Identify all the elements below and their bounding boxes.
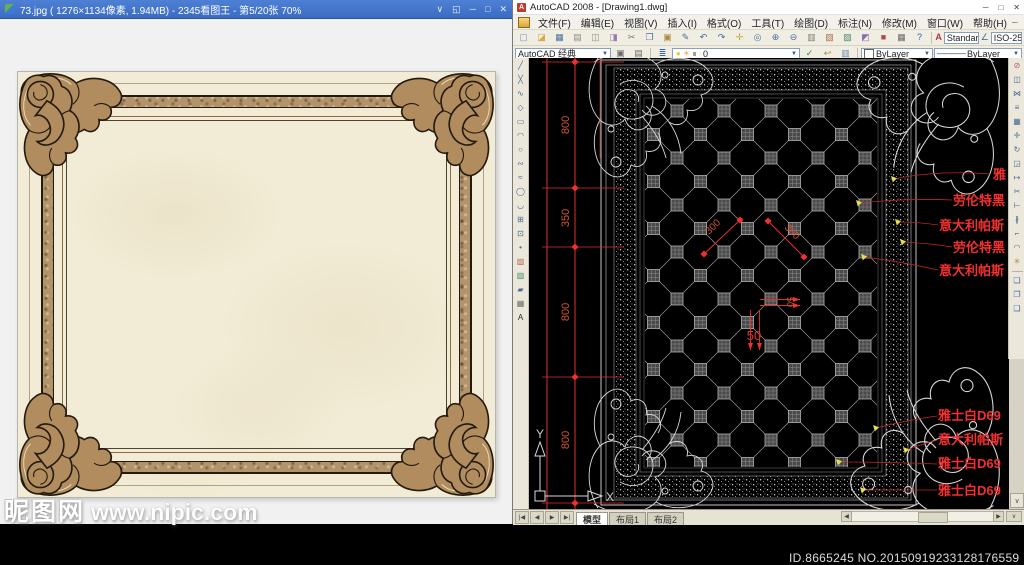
viewer-canvas[interactable] — [0, 19, 512, 524]
chamfer-icon[interactable]: ⌐ — [1010, 227, 1024, 241]
color-chip-icon — [864, 49, 874, 59]
menu-item[interactable]: 视图(V) — [619, 15, 662, 30]
lineweight-glyph: ———— — [937, 49, 965, 58]
dim-style-combo[interactable]: ISO-25 ▼ — [991, 32, 1022, 44]
layer-state-icons: ●☀∎▪ — [675, 50, 703, 58]
rectangle-icon[interactable]: ▭ — [513, 115, 528, 129]
circle-icon[interactable]: ○ — [513, 143, 528, 157]
scroll-right-button[interactable]: ▶ — [993, 511, 1004, 522]
nipic-url: www.nipic.com — [91, 499, 258, 526]
text-style-value: Standard — [947, 33, 979, 43]
acad-window-controls: ─□✕ — [983, 3, 1020, 12]
undo-icon[interactable]: ↶ — [695, 30, 712, 45]
move-icon[interactable]: ✛ — [1010, 129, 1024, 143]
publish-icon[interactable]: ◨ — [605, 30, 622, 45]
horizontal-scroll-thumb[interactable] — [918, 512, 948, 523]
polygon-icon[interactable]: ◇ — [513, 101, 528, 115]
cut-icon[interactable]: ✂ — [623, 30, 640, 45]
zoom-realtime-icon[interactable]: ◎ — [749, 30, 766, 45]
acad-close-icon[interactable]: ✕ — [1013, 3, 1020, 12]
insert-block-icon[interactable]: ⊞ — [513, 213, 528, 227]
scale-icon[interactable]: ◲ — [1010, 157, 1024, 171]
text-style-combo[interactable]: Standard ▼ — [944, 32, 979, 44]
revision-cloud-icon[interactable]: ∾ — [513, 157, 528, 171]
menu-item[interactable]: 工具(T) — [746, 15, 789, 30]
menu-item[interactable]: 帮助(H) — [968, 15, 1012, 30]
viewer-fullscreen-icon[interactable]: ◱ — [452, 4, 461, 15]
dim-50-vertical: 50 — [747, 328, 761, 343]
label-top-5: 意大利帕斯 — [939, 263, 1004, 278]
viewer-titlebar[interactable]: 73.jpg ( 1276×1134像素, 1.94MB) - 2345看图王 … — [0, 0, 512, 19]
standard-toolbar-icons: ▢◪▦▤◫◨✂❐▣✎↶↷✛◎⊕⊖▥▨▧◩■▦? — [515, 30, 928, 45]
copy-object-icon[interactable]: ◫ — [1010, 73, 1024, 87]
polyline-icon[interactable]: ∿ — [513, 87, 528, 101]
designcenter-icon[interactable]: ▨ — [821, 30, 838, 45]
markup-icon[interactable]: ■ — [875, 30, 892, 45]
ucs-y-label: Y — [536, 427, 544, 441]
stretch-icon[interactable]: ↦ — [1010, 171, 1024, 185]
menu-item[interactable]: 绘图(D) — [789, 15, 833, 30]
ellipse-icon[interactable]: ◯ — [513, 185, 528, 199]
viewer-close-icon[interactable]: ✕ — [499, 4, 507, 15]
acad-titlebar[interactable]: A AutoCAD 2008 - [Drawing1.dwg] ─□✕ — [513, 0, 1024, 15]
label-bottom-3: 雅士白D69 — [938, 456, 1001, 471]
tab-next-icon[interactable]: ▶ — [545, 511, 559, 524]
label-bottom-1: 雅士白D69 — [938, 408, 1001, 423]
help-icon[interactable]: ? — [911, 30, 928, 45]
mdi-minimize-icon[interactable]: ─ — [1012, 18, 1018, 27]
quickcalc-icon[interactable]: ▦ — [893, 30, 910, 45]
tab-layout2[interactable]: 布局2 — [647, 512, 684, 525]
chevron-down-icon: ▼ — [1011, 51, 1019, 57]
chevron-down-icon: ∨ — [1014, 497, 1019, 505]
dim-800-bottom: 800 — [560, 431, 572, 449]
photo-marble-border-design[interactable] — [17, 71, 496, 498]
menu-item[interactable]: 窗口(W) — [922, 15, 968, 30]
point-icon[interactable]: • — [513, 241, 528, 255]
tab-prev-icon[interactable]: ◀ — [530, 511, 544, 524]
trim-icon[interactable]: ✂ — [1010, 185, 1024, 199]
chevron-down-icon: ▼ — [789, 51, 797, 57]
menu-item[interactable]: 标注(N) — [833, 15, 877, 30]
dim-800-mid: 800 — [560, 303, 572, 321]
drawing-file-icon — [518, 17, 530, 28]
make-block-icon[interactable]: ⊡ — [513, 227, 528, 241]
menu-items: 文件(F)编辑(E)视图(V)插入(I)格式(O)工具(T)绘图(D)标注(N)… — [533, 15, 1012, 30]
plot-preview-icon[interactable]: ◫ — [587, 30, 604, 45]
viewer-window-controls: ∨◱─□✕ — [437, 4, 507, 15]
arc-icon[interactable]: ◠ — [513, 129, 528, 143]
viewer-title: 73.jpg ( 1276×1134像素, 1.94MB) - 2345看图王 … — [20, 2, 432, 17]
ucs-x-label: X — [606, 490, 614, 504]
layer-freeze-sun-icon[interactable]: ☀ — [683, 50, 690, 58]
draw-toolbar: ╱╳∿◇▭◠○∾≈◯◡⊞⊡•▨▧▰▦A — [513, 58, 529, 509]
paste-icon[interactable]: ▣ — [659, 30, 676, 45]
new-file-icon[interactable]: ▢ — [515, 30, 532, 45]
match-properties-icon[interactable]: ✎ — [677, 30, 694, 45]
line-icon[interactable]: ╱ — [513, 59, 528, 73]
order-icon[interactable]: ❑ — [1010, 302, 1024, 316]
menu-item[interactable]: 修改(M) — [877, 15, 922, 30]
copy-icon[interactable]: ❐ — [641, 30, 658, 45]
menu-item[interactable]: 插入(I) — [662, 15, 701, 30]
tab-nav-buttons: |◀◀▶▶| — [513, 510, 576, 525]
autocad-window: A AutoCAD 2008 - [Drawing1.dwg] ─□✕ 文件(F… — [512, 0, 1024, 524]
photo-corner-ornament-bottom-right — [375, 377, 497, 499]
scroll-down-button[interactable]: ∨ — [1010, 493, 1024, 508]
viewer-maximize-icon[interactable]: □ — [485, 4, 490, 15]
layer-lock-icon[interactable]: ∎ — [692, 50, 697, 58]
label-top-4: 劳伦特黑 — [953, 240, 1005, 255]
zoom-window-icon[interactable]: ⊕ — [767, 30, 784, 45]
tab-first-icon[interactable]: |◀ — [515, 511, 529, 524]
spline-icon[interactable]: ≈ — [513, 171, 528, 185]
photo-corner-ornament-top-right — [375, 70, 497, 192]
layer-color-chip-icon[interactable]: ▪ — [699, 50, 702, 58]
pan-icon[interactable]: ✛ — [731, 30, 748, 45]
color-value: ByLayer — [876, 49, 909, 59]
tab-layout1[interactable]: 布局1 — [609, 512, 646, 525]
nipic-logo: 昵图网 — [4, 492, 85, 528]
horizontal-scroll-track[interactable] — [852, 511, 993, 522]
acad-minimize-icon[interactable]: ─ — [983, 3, 989, 12]
chevron-down-icon: ▼ — [922, 51, 930, 57]
label-top-1: 雅 — [993, 167, 1006, 182]
tool-palettes-icon[interactable]: ▧ — [839, 30, 856, 45]
menu-item[interactable]: 文件(F) — [533, 15, 576, 30]
multiline-text-icon[interactable]: A — [513, 311, 528, 325]
screen: { "viewer": { "title": "73.jpg ( 1276×11… — [0, 0, 1024, 524]
region-icon[interactable]: ▰ — [513, 283, 528, 297]
layer-name-value: 0 — [703, 49, 708, 59]
chevron-down-icon: ∨ — [1012, 513, 1016, 520]
extend-icon[interactable]: ⊢ — [1010, 199, 1024, 213]
construction-line-icon[interactable]: ╳ — [513, 73, 528, 87]
save-icon[interactable]: ▦ — [551, 30, 568, 45]
group-icon[interactable]: ❏ — [1010, 274, 1024, 288]
layer-on-bulb-icon[interactable]: ● — [676, 50, 681, 58]
acad-main-area: ╱╳∿◇▭◠○∾≈◯◡⊞⊡•▨▧▰▦A — [513, 58, 1024, 509]
acad-maximize-icon[interactable]: □ — [998, 3, 1003, 12]
modify-toolbar: ⊘◫⋈≡▦✛↻◲↦✂⊢∦⌐◠✳ ❏❐❑ — [1008, 58, 1024, 359]
acad-title: AutoCAD 2008 - [Drawing1.dwg] — [530, 2, 979, 13]
dim-style-icon[interactable]: ∠ — [980, 30, 990, 45]
scroll-left-button[interactable]: ◀ — [841, 511, 852, 522]
erase-icon[interactable]: ⊘ — [1010, 59, 1024, 73]
label-bottom-4: 雅士白D69 — [938, 483, 1001, 498]
tab-last-icon[interactable]: ▶| — [560, 511, 574, 524]
open-folder-icon[interactable]: ◪ — [533, 30, 550, 45]
dim-800-top: 800 — [560, 116, 572, 134]
mdi-controls: ─❐✕ — [1012, 18, 1024, 27]
acad-app-icon: A — [517, 3, 526, 12]
array-icon[interactable]: ▦ — [1010, 115, 1024, 129]
hatch-icon[interactable]: ▨ — [513, 255, 528, 269]
offset-icon[interactable]: ≡ — [1010, 101, 1024, 115]
ellipse-arc-icon[interactable]: ◡ — [513, 199, 528, 213]
drawing-canvas[interactable]: 800 350 800 800 300 300 50 50 — [528, 58, 1024, 509]
nipic-watermark: 昵图网 www.nipic.com — [4, 492, 258, 528]
explode-icon[interactable]: ✳ — [1010, 255, 1024, 269]
cad-diagonal-grid — [645, 99, 877, 467]
plot-icon[interactable]: ▤ — [569, 30, 586, 45]
ungroup-icon[interactable]: ❐ — [1010, 288, 1024, 302]
acad-menubar: 文件(F)编辑(E)视图(V)插入(I)格式(O)工具(T)绘图(D)标注(N)… — [513, 15, 1024, 30]
chevron-down-icon: ▼ — [600, 51, 608, 57]
viewer-app-icon — [5, 4, 15, 14]
redo-icon[interactable]: ↷ — [713, 30, 730, 45]
image-viewer-window: 73.jpg ( 1276×1134像素, 1.94MB) - 2345看图王 … — [0, 0, 512, 524]
photo-corner-ornament-bottom-left — [16, 377, 138, 499]
stock-id-watermark: ID.8665245 NO.20150919233128176559 — [789, 551, 1019, 565]
break-icon[interactable]: ∦ — [1010, 213, 1024, 227]
label-top-2: 劳伦特黑 — [953, 193, 1005, 208]
standard-toolbar: ▢◪▦▤◫◨✂❐▣✎↶↷✛◎⊕⊖▥▨▧◩■▦? A Standard ▼ ∠ I… — [513, 30, 1024, 46]
text-style-icon[interactable]: A — [934, 30, 943, 45]
mirror-icon[interactable]: ⋈ — [1010, 87, 1024, 101]
viewer-menu-arrow-icon[interactable]: ∨ — [437, 4, 444, 15]
photo-corner-ornament-top-left — [16, 70, 138, 192]
cad-drawing: 800 350 800 800 300 300 50 50 — [528, 58, 1024, 509]
properties-icon[interactable]: ▥ — [803, 30, 820, 45]
fillet-icon[interactable]: ◠ — [1010, 241, 1024, 255]
viewer-minimize-icon[interactable]: ─ — [470, 4, 476, 15]
tab-model[interactable]: 模型 — [576, 512, 608, 525]
material-labels: 雅 劳伦特黑 意大利帕斯 劳伦特黑 意大利帕斯 雅士白D69 意大利帕斯 雅士白… — [938, 167, 1006, 498]
dim-350: 350 — [560, 209, 572, 227]
sheetset-manager-icon[interactable]: ◩ — [857, 30, 874, 45]
lineweight-value: ByLayer — [967, 49, 1000, 59]
zoom-previous-icon[interactable]: ⊖ — [785, 30, 802, 45]
table-icon[interactable]: ▦ — [513, 297, 528, 311]
scrollbar-corner-button[interactable]: ∨ — [1006, 511, 1022, 522]
dim-50-horizontal: 50 — [785, 297, 795, 307]
horizontal-scrollbar[interactable]: ◀ ▶ — [841, 511, 1004, 522]
rotate-icon[interactable]: ↻ — [1010, 143, 1024, 157]
gradient-icon[interactable]: ▧ — [513, 269, 528, 283]
menu-item[interactable]: 编辑(E) — [576, 15, 619, 30]
toolbar-separator — [1012, 271, 1023, 272]
label-bottom-2: 意大利帕斯 — [938, 432, 1003, 447]
menu-item[interactable]: 格式(O) — [702, 15, 746, 30]
label-top-3: 意大利帕斯 — [939, 218, 1004, 233]
dim-style-value: ISO-25 — [994, 33, 1022, 43]
